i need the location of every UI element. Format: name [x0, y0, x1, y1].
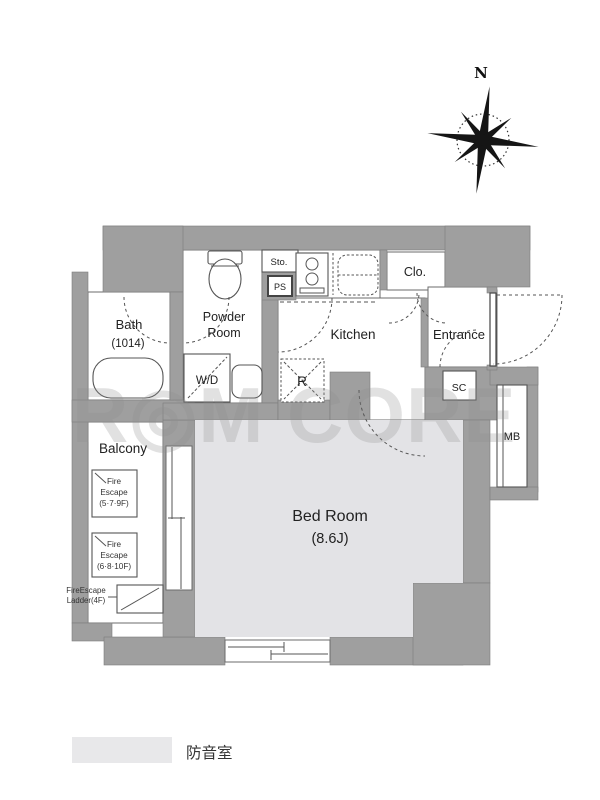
toilet	[208, 251, 242, 299]
label-powder-2: Room	[207, 326, 240, 340]
label-fire-escape-2-l3: (6·8·10F)	[97, 562, 131, 571]
label-fire-escape-1-l1: Fire	[107, 477, 122, 486]
entrance-door-arc	[493, 295, 562, 364]
label-meter-box: MB	[504, 431, 521, 443]
floor-plan: R◎M CORE Bath (1014) Powder Room W/D Sto…	[0, 0, 600, 800]
kitchen-sink	[338, 255, 378, 295]
label-entrance: Entrance	[433, 327, 485, 342]
bedroom-south-window	[225, 640, 330, 662]
stove	[296, 253, 328, 296]
label-fire-escape-2-l2: Escape	[100, 551, 128, 560]
label-fire-escape-ladder-l1: FireEscape	[66, 586, 105, 595]
label-shoe-closet: SC	[452, 382, 467, 394]
label-fire-escape-1-l3: (5·7·9F)	[99, 499, 129, 508]
label-fire-escape-1-l2: Escape	[100, 488, 128, 497]
label-storage: Sto.	[271, 257, 288, 268]
legend-swatch	[72, 737, 172, 763]
legend: 防音室	[72, 737, 233, 763]
floor-plan-page: R◎M CORE Bath (1014) Powder Room W/D Sto…	[0, 0, 600, 800]
legend-label: 防音室	[186, 744, 233, 762]
label-bedroom-size: (8.6J)	[311, 531, 348, 547]
label-fire-escape-ladder-l2: Ladder(4F)	[67, 596, 106, 605]
compass-icon: N	[421, 64, 545, 200]
label-bedroom: Bed Room	[292, 508, 368, 525]
label-bath-size: (1014)	[111, 338, 144, 350]
label-kitchen: Kitchen	[330, 327, 375, 342]
balcony-window	[166, 446, 192, 590]
label-closet: Clo.	[404, 265, 426, 279]
label-pipe-space: PS	[274, 282, 286, 292]
label-fire-escape-2-l1: Fire	[107, 540, 122, 549]
label-bath: Bath	[116, 317, 143, 332]
label-refrigerator: R	[297, 374, 307, 389]
compass-north-label: N	[474, 64, 488, 82]
label-balcony: Balcony	[99, 441, 147, 456]
label-powder-1: Powder	[203, 310, 245, 324]
label-washer-dryer: W/D	[196, 375, 218, 387]
